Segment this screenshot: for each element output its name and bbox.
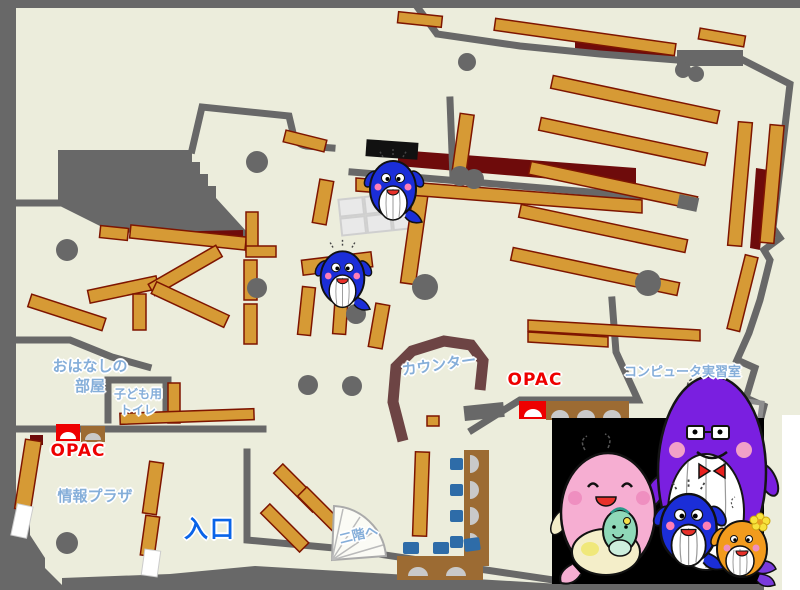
label-kids-toilet: 子ども用 トイレ (107, 387, 169, 418)
opac-terminal-right (519, 401, 629, 420)
dark-nook (365, 139, 418, 160)
label-entrance: 入口 (180, 514, 240, 545)
label-info-plaza: 情報プラザ (50, 487, 140, 507)
label-computer-room: コンピュータ実習室 (615, 365, 750, 382)
label-opac-left: OPAC (48, 440, 108, 462)
page-margin (782, 415, 800, 590)
label-opac-right: OPAC (505, 369, 565, 391)
library-floor-map: おはなしの 部屋 子ども用 トイレ OPAC 情報プラザ 入口 カウンター OP… (0, 0, 800, 590)
